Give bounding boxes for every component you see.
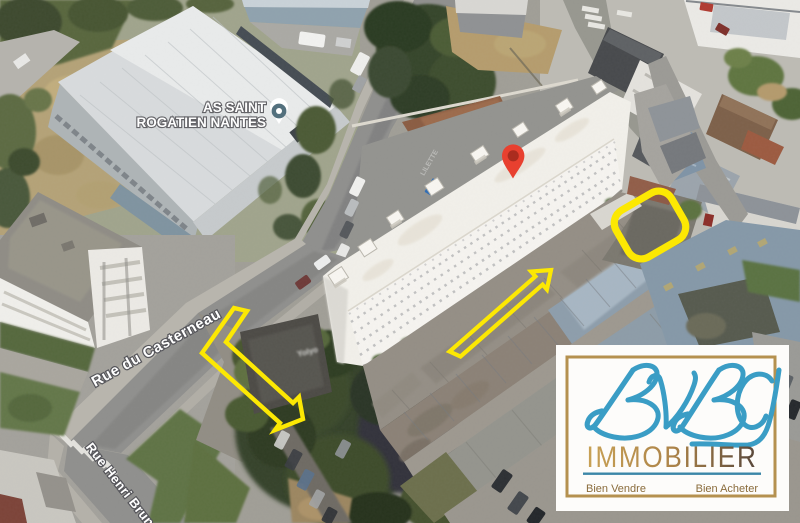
svg-text:IMMOBILIER: IMMOBILIER [586,440,757,473]
svg-text:AS SAINT: AS SAINT [203,100,267,115]
svg-text:Bien Acheter: Bien Acheter [696,483,759,495]
svg-text:ROGATIEN NANTES: ROGATIEN NANTES [136,115,266,130]
svg-text:Bien Vendre: Bien Vendre [586,483,646,495]
